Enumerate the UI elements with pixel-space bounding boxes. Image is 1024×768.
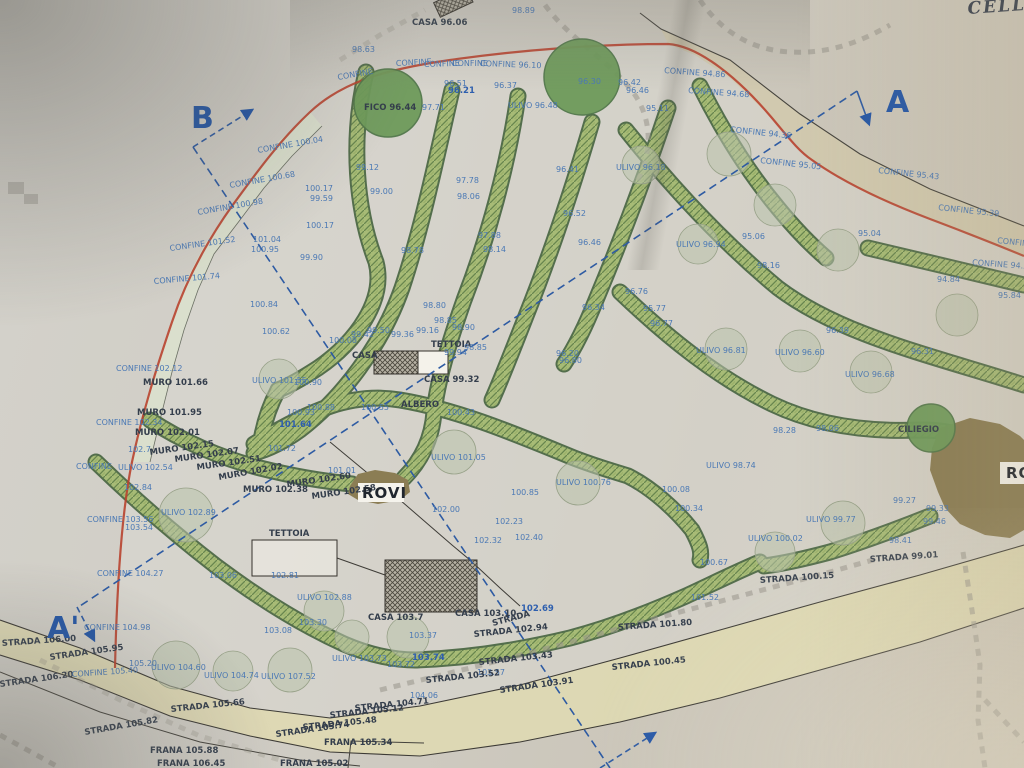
map-label: ULIVO 96.94: [676, 240, 726, 249]
map-label: 98.85: [464, 343, 487, 352]
map-label: CONFINE: [76, 462, 112, 471]
map-label: 103.72: [387, 660, 415, 669]
map-label: ULIVO 102.54: [118, 463, 173, 472]
section-arrow-b-prime: [600, 733, 655, 768]
map-label: ULIVO 102.88: [297, 593, 352, 602]
map-label: 94.84: [937, 275, 960, 284]
map-label: 98.28: [773, 426, 796, 435]
map-label: 96.80: [559, 356, 582, 365]
map-label: FRANA 105.34: [324, 738, 392, 748]
map-label: CASA: [352, 351, 378, 361]
map-label: 103.74: [412, 653, 445, 663]
map-label: 102.84: [124, 483, 152, 492]
map-label: 98.80: [423, 301, 446, 310]
map-label: 95.84: [998, 291, 1021, 300]
section-letter: A': [47, 611, 79, 646]
map-label: 98.16: [757, 261, 780, 270]
section-letter: A: [886, 85, 910, 120]
map-label: 96.52: [563, 209, 586, 218]
map-label: FRANA 105.88: [150, 746, 218, 756]
map-label: 102.32: [474, 536, 502, 545]
map-label: 96.37: [494, 81, 517, 90]
section-arrow-a: [857, 91, 869, 124]
handwritten-note: CELLO: [967, 0, 1024, 19]
map-label: 103.37: [409, 631, 437, 640]
map-label: 100.95: [251, 245, 279, 254]
map-label: 101.64: [279, 420, 312, 430]
rovi-label: ROVI: [362, 484, 407, 502]
map-label: 99.46: [923, 517, 946, 526]
map-label: 99.90: [300, 253, 323, 262]
map-label: 100.93: [287, 408, 315, 417]
map-label: ULIVO 96.81: [696, 346, 746, 355]
map-label: MURO 101.95: [137, 408, 202, 418]
map-label: 103.06: [209, 571, 237, 580]
map-label: 97.71: [422, 103, 445, 112]
map-label: CONFINE 104.27: [97, 569, 163, 578]
map-label: FRANA 105.02: [280, 759, 348, 768]
map-label: 96.21: [448, 86, 475, 96]
survey-drawing: 98.89CASA 96.0698.63CONFINECONFINECONFIN…: [0, 0, 1024, 768]
map-label: ULIVO 104.60: [151, 663, 206, 672]
map-label: 96.30: [578, 77, 601, 86]
map-label: 102.00: [432, 505, 460, 514]
map-label: CONFINE 102.34: [96, 418, 162, 427]
map-label: ULIVO 100.02: [748, 534, 803, 543]
map-label: ULIVO 103.73: [332, 654, 387, 663]
map-label: 99.36: [391, 330, 414, 339]
map-label: 101.04: [253, 235, 281, 244]
map-label: 101.52: [691, 593, 719, 602]
map-label: 96.31: [911, 347, 934, 356]
map-label: 99.59: [310, 194, 333, 203]
map-label: ULIVO 96.60: [775, 348, 825, 357]
map-label: 101.72: [268, 444, 296, 453]
map-label: 98.90: [452, 323, 475, 332]
map-label: ULIVO 101.05: [431, 453, 486, 462]
map-label: 103.54: [125, 523, 153, 532]
map-label: ALBERO: [401, 400, 439, 410]
map-label: 98.89: [512, 6, 535, 15]
map-label: 100.55: [361, 403, 389, 412]
map-label: 98.63: [352, 45, 375, 54]
map-label: ULIVO 100.76: [556, 478, 611, 487]
map-label: 98.06: [457, 192, 480, 201]
map-label: 99.33: [926, 504, 949, 513]
map-label: 97.78: [456, 176, 479, 185]
map-label: 96.46: [578, 238, 601, 247]
map-label: ULIVO 96.18: [616, 163, 666, 172]
raster-artifact-blobs: [8, 182, 38, 204]
map-label: ULIVO 107.52: [261, 672, 316, 681]
map-label: CONFINE 102.12: [116, 364, 182, 373]
map-label: 100.17: [306, 221, 334, 230]
rovi-label: ROVI: [1006, 464, 1024, 482]
map-label: 100.43: [447, 408, 475, 417]
map-label: 103.08: [264, 626, 292, 635]
map-label: 101.01: [328, 466, 356, 475]
map-label: 100.17: [305, 184, 333, 193]
map-label: 96.76: [625, 287, 648, 296]
map-label: 98.06: [816, 424, 839, 433]
map-label: 95.77: [643, 304, 666, 313]
map-label: CONFINE 104.98: [84, 623, 150, 632]
map-label: CASA 96.06: [412, 18, 467, 28]
map-label: 99.12: [356, 163, 379, 172]
map-label: TETTOIA: [269, 529, 310, 539]
map-label: 102.40: [515, 533, 543, 542]
map-label: 98.41: [889, 536, 912, 545]
map-label: 96.77: [650, 319, 673, 328]
survey-map-photo: { "map": { "handwritten_note": "CELLO", …: [0, 0, 1024, 768]
map-label: 95.06: [742, 232, 765, 241]
map-label: 96.41: [556, 165, 579, 174]
map-label: 102.23: [495, 517, 523, 526]
map-label: 98.78: [401, 246, 424, 255]
map-label: ULIVO 96.48: [508, 101, 558, 110]
map-label: ULIVO 96.68: [845, 370, 895, 379]
map-label: 98.14: [483, 245, 506, 254]
map-label: CASA 103.7: [368, 613, 423, 623]
map-label: 96.34: [582, 303, 605, 312]
section-letter: B: [191, 101, 214, 136]
map-label: CASA 99.32: [424, 375, 479, 385]
map-label: 100.90: [294, 378, 322, 387]
map-label: FICO 96.44: [364, 103, 416, 113]
map-label: 95.04: [858, 229, 881, 238]
map-label: ULIVO 102.89: [161, 508, 216, 517]
map-label: ULIVO 99.77: [806, 515, 856, 524]
map-label: 97.88: [478, 231, 501, 240]
map-label: CILIEGIO: [898, 425, 939, 435]
map-label: 100.62: [262, 327, 290, 336]
map-canvas: 98.89CASA 96.0698.63CONFINECONFINECONFIN…: [0, 0, 1024, 768]
map-label: 99.16: [416, 326, 439, 335]
map-label: 102.81: [271, 571, 299, 580]
map-label: MURO 102.01: [135, 428, 200, 438]
map-label: 95.11: [646, 104, 669, 113]
map-label: 100.34: [675, 504, 703, 513]
map-label: 96.39: [826, 326, 849, 335]
map-label: 99.00: [370, 187, 393, 196]
map-label: ULIVO 104.74: [204, 671, 259, 680]
map-label: MURO 101.66: [143, 378, 208, 388]
map-label: 103.30: [299, 618, 327, 627]
map-label: 96.46: [626, 86, 649, 95]
map-label: 102.7: [128, 445, 151, 454]
map-label: 100.85: [511, 488, 539, 497]
map-label: ULIVO 98.74: [706, 461, 756, 470]
map-label: 99.27: [893, 496, 916, 505]
map-label: 99.42: [351, 330, 374, 339]
map-label: 100.08: [662, 485, 690, 494]
map-label: 100.67: [700, 558, 728, 567]
map-label: 100.84: [250, 300, 278, 309]
map-label: FRANA 106.45: [157, 759, 225, 768]
